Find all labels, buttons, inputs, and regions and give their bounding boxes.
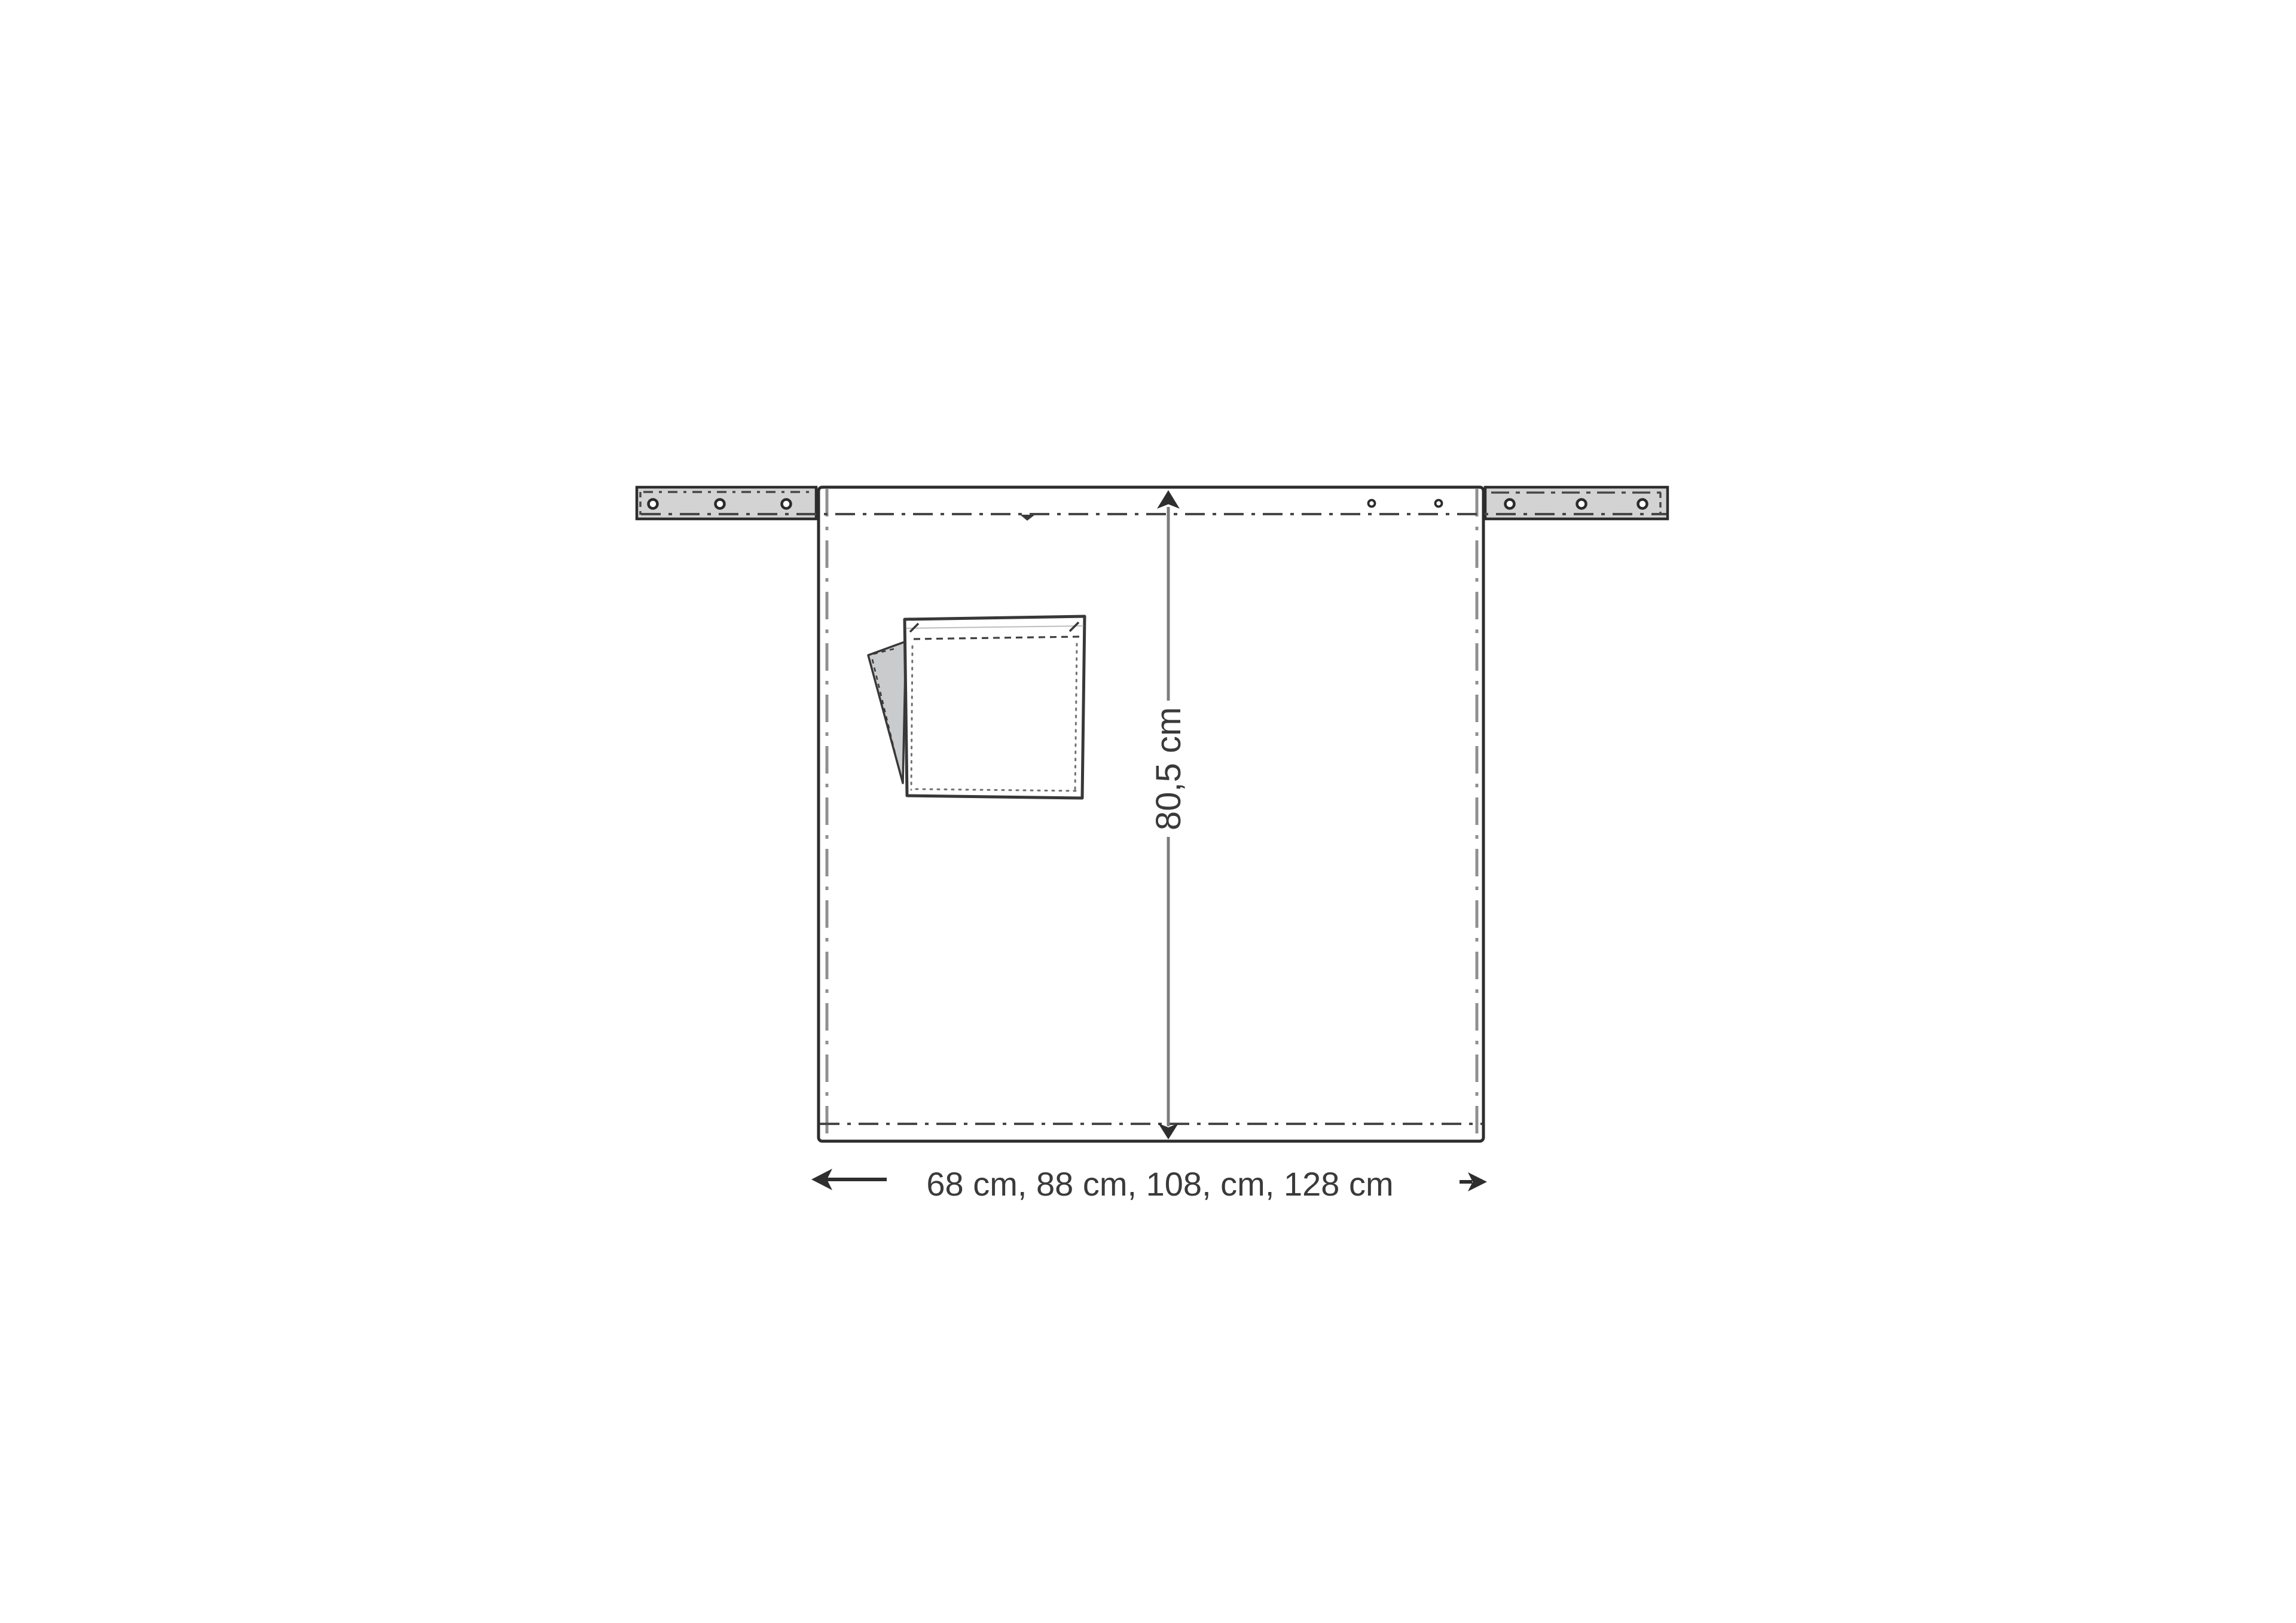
svg-text:68 cm, 88 cm, 108, cm, 128 cm: 68 cm, 88 cm, 108, cm, 128 cm <box>926 1165 1393 1203</box>
svg-text:80,5 cm: 80,5 cm <box>1149 707 1188 830</box>
